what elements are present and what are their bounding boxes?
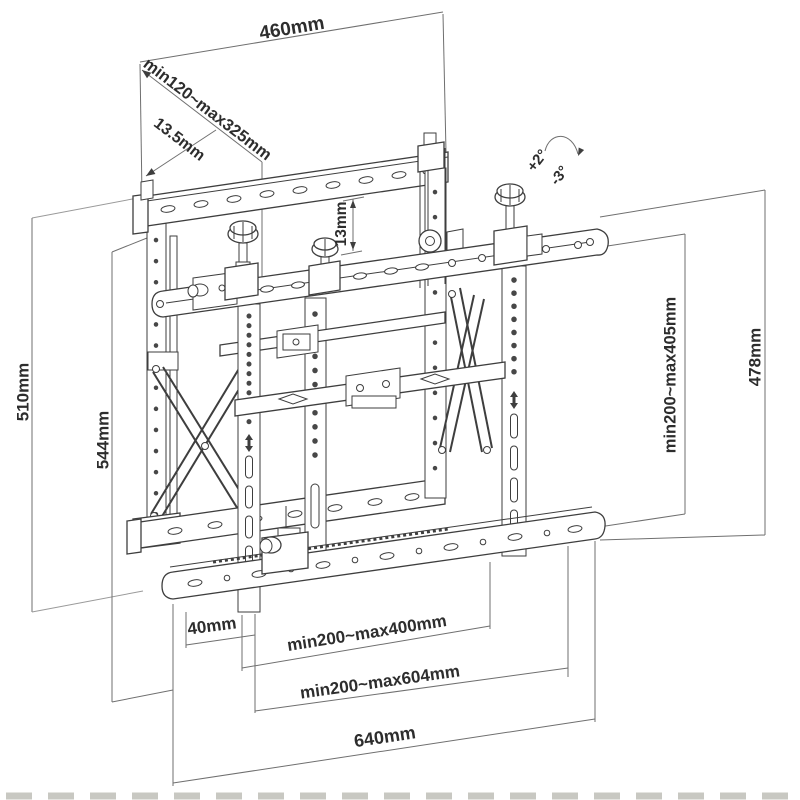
dim-40-label: 40mm — [186, 613, 237, 638]
dim-13mm-label: 13mm — [333, 202, 350, 247]
right-knob — [494, 184, 542, 265]
dim-640-label: 640mm — [353, 722, 417, 751]
left-wall-strip — [147, 213, 177, 538]
mount-bracket — [127, 133, 608, 612]
right-tv-strip — [502, 266, 526, 556]
dim-604-label: min200~max604mm — [299, 661, 461, 702]
arrowhead — [144, 168, 155, 179]
dim-vesa-height-label: min200~max405mm — [661, 297, 679, 453]
dim-510-label: 510mm — [13, 363, 32, 422]
diagram-canvas: 460mm min120~max325mm 13.5mm 13mm +2° -3… — [0, 0, 800, 800]
tilt-down-label: -3° — [547, 163, 572, 189]
dim-vesa-width-label: min200~max400mm — [286, 611, 448, 655]
tilt-arm-block — [418, 142, 444, 172]
rail-end-cap — [127, 519, 141, 554]
wall-mount-dimension-diagram: 460mm min120~max325mm 13.5mm 13mm +2° -3… — [0, 0, 800, 800]
dim-depth-range-label: min120~max325mm — [140, 55, 275, 164]
dim-544-label: 544mm — [93, 411, 112, 470]
dim-hook-depth-label: 13.5mm — [150, 115, 208, 165]
dim-478-label: 478mm — [745, 328, 764, 387]
left-knob — [225, 221, 258, 300]
tilt-arc — [545, 136, 578, 154]
dim-460-label: 460mm — [258, 13, 326, 45]
arrowhead — [350, 200, 356, 208]
wall-top-rail — [133, 152, 448, 234]
arrowhead — [350, 242, 356, 250]
tilt-up-label: +2° — [524, 146, 552, 175]
wall-hook — [141, 180, 153, 200]
